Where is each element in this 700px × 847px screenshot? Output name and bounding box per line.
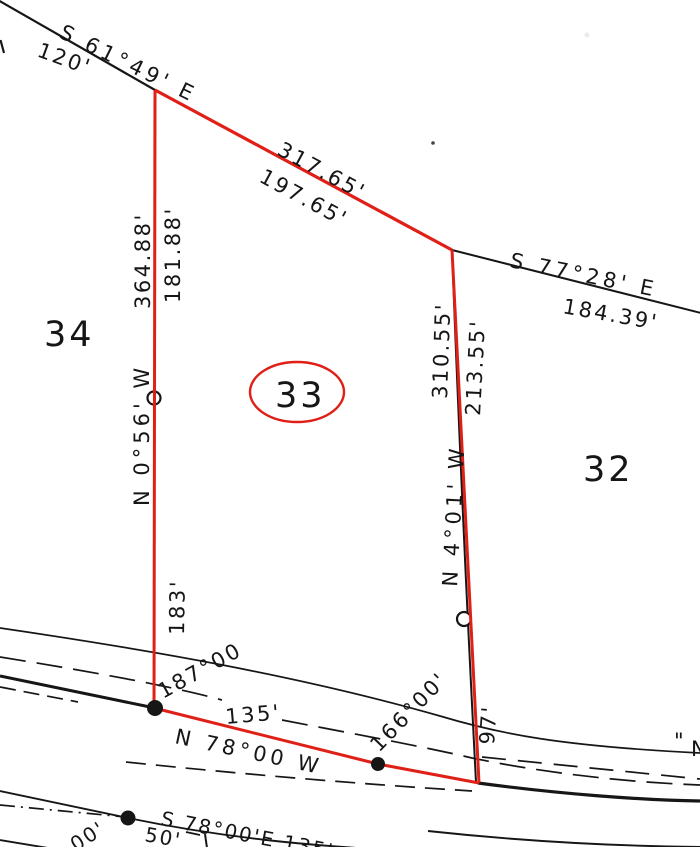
parcel-west-line <box>154 90 155 708</box>
monument-circles <box>148 392 472 627</box>
dash-dot-line-sw <box>0 805 126 817</box>
survey-boundary-lines <box>0 0 700 782</box>
parcel-number-32: 32 <box>583 450 634 490</box>
quote-mark-ne: " <box>674 729 686 753</box>
filled-monuments <box>121 33 590 826</box>
road-edge-thick-right <box>478 783 700 801</box>
distance-east-part: 213.55' <box>461 318 490 416</box>
south-curve-right <box>428 831 700 847</box>
distance-west-part: 181.88' <box>161 206 185 303</box>
south-line-bearing: S 78°00'E 135' <box>159 806 336 847</box>
distance-west-lower: 183' <box>165 579 190 635</box>
parcel-number-33: 33 <box>275 376 326 416</box>
bearing-west: N 0°56' W <box>130 364 154 506</box>
road-angle-east: 166°00' <box>365 667 452 756</box>
road-edge-thick-left <box>0 676 155 708</box>
open-monument-east <box>457 612 471 626</box>
distance-west-total: 364.88' <box>131 212 155 309</box>
partial-label-sw: 00' <box>66 816 110 847</box>
partial-letter-ne: N <box>691 737 700 761</box>
faint-smudge <box>585 33 590 38</box>
partial-label-west-edge: 5' <box>0 571 4 598</box>
corner-line-sw <box>0 840 48 847</box>
road-lines <box>0 628 700 847</box>
labels: S 61°49' E 120' 317.65' 197.65' S 77°28'… <box>0 20 700 847</box>
plat-sheet: S 61°49' E 120' 317.65' 197.65' S 77°28'… <box>0 0 700 847</box>
parcel-number-34: 34 <box>44 315 95 355</box>
road-frontage: 135' <box>224 700 282 729</box>
distance-east-total: 310.55' <box>428 302 455 400</box>
distance-ne: 184.39' <box>561 294 660 334</box>
bearing-ne: S 77°28' E <box>508 248 659 301</box>
small-dot-top <box>431 141 435 145</box>
filled-monument-sw <box>147 700 163 716</box>
road-dashed-lower-right <box>482 757 700 779</box>
plat-map: S 61°49' E 120' 317.65' 197.65' S 77°28'… <box>0 0 700 847</box>
filled-monument-far-south <box>121 811 136 826</box>
edge-mark-nw <box>1 40 5 53</box>
filled-monument-south <box>371 757 385 771</box>
road-edge-upper <box>0 628 700 753</box>
distance-east-lower: 97' <box>475 704 502 746</box>
